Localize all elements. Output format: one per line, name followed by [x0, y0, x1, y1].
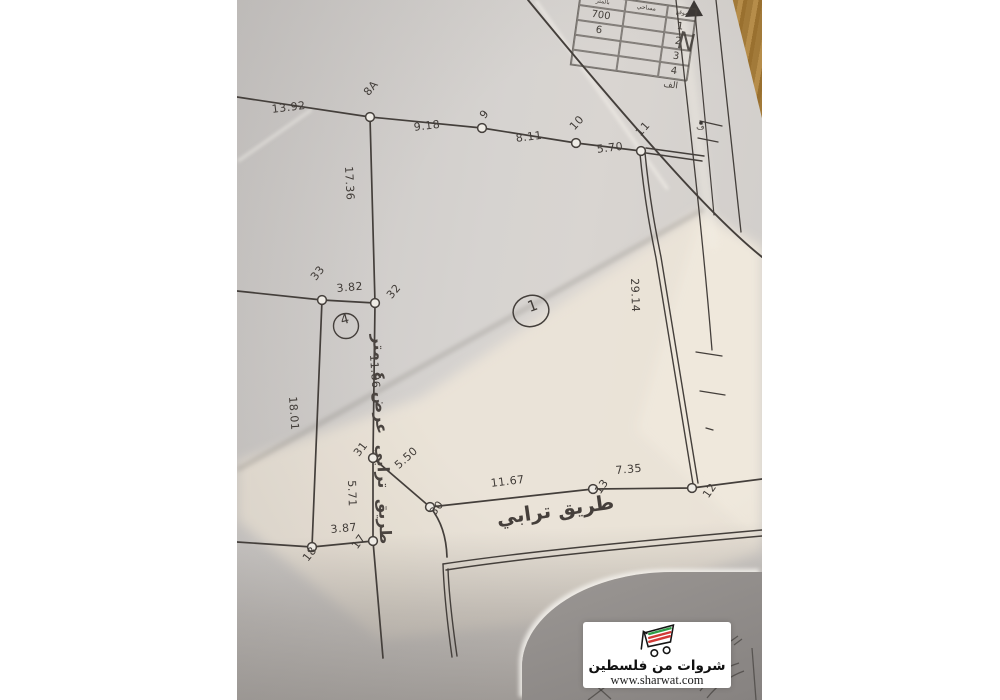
- road-edge-lines: [443, 148, 762, 657]
- nbox-glyph: ف: [696, 122, 705, 132]
- measurement-29-14: 29.14: [628, 278, 642, 312]
- watermark-brand: شروات من فلسطين: [588, 659, 725, 673]
- paper-sheet: 13.92 9.18 8.11 5.70 17.36 3.82 11.86 18…: [237, 0, 762, 700]
- watermark-url: www.sharwat.com: [611, 674, 704, 687]
- measurement-3-82: 3.82: [336, 280, 364, 295]
- measurement-17-36: 17.36: [342, 166, 357, 201]
- parcel-boundary-lines: [237, 0, 762, 658]
- legend-table: بالمتر مساحي موقع 700 1 6 2 3 4 الف: [568, 0, 697, 93]
- survey-map-photo: 13.92 9.18 8.11 5.70 17.36 3.82 11.86 18…: [0, 0, 1000, 700]
- watermark: شروات من فلسطين www.sharwat.com: [583, 622, 731, 688]
- measurement-3-87: 3.87: [330, 521, 358, 536]
- measurement-18-01: 18.01: [286, 396, 301, 431]
- survey-plan-drawing: [237, 0, 762, 700]
- measurement-7-35: 7.35: [615, 462, 643, 477]
- number-circles: [334, 292, 553, 339]
- measurement-5-71: 5.71: [345, 480, 359, 507]
- legend-cell: 4: [658, 62, 690, 81]
- shopping-cart-icon: [629, 623, 685, 659]
